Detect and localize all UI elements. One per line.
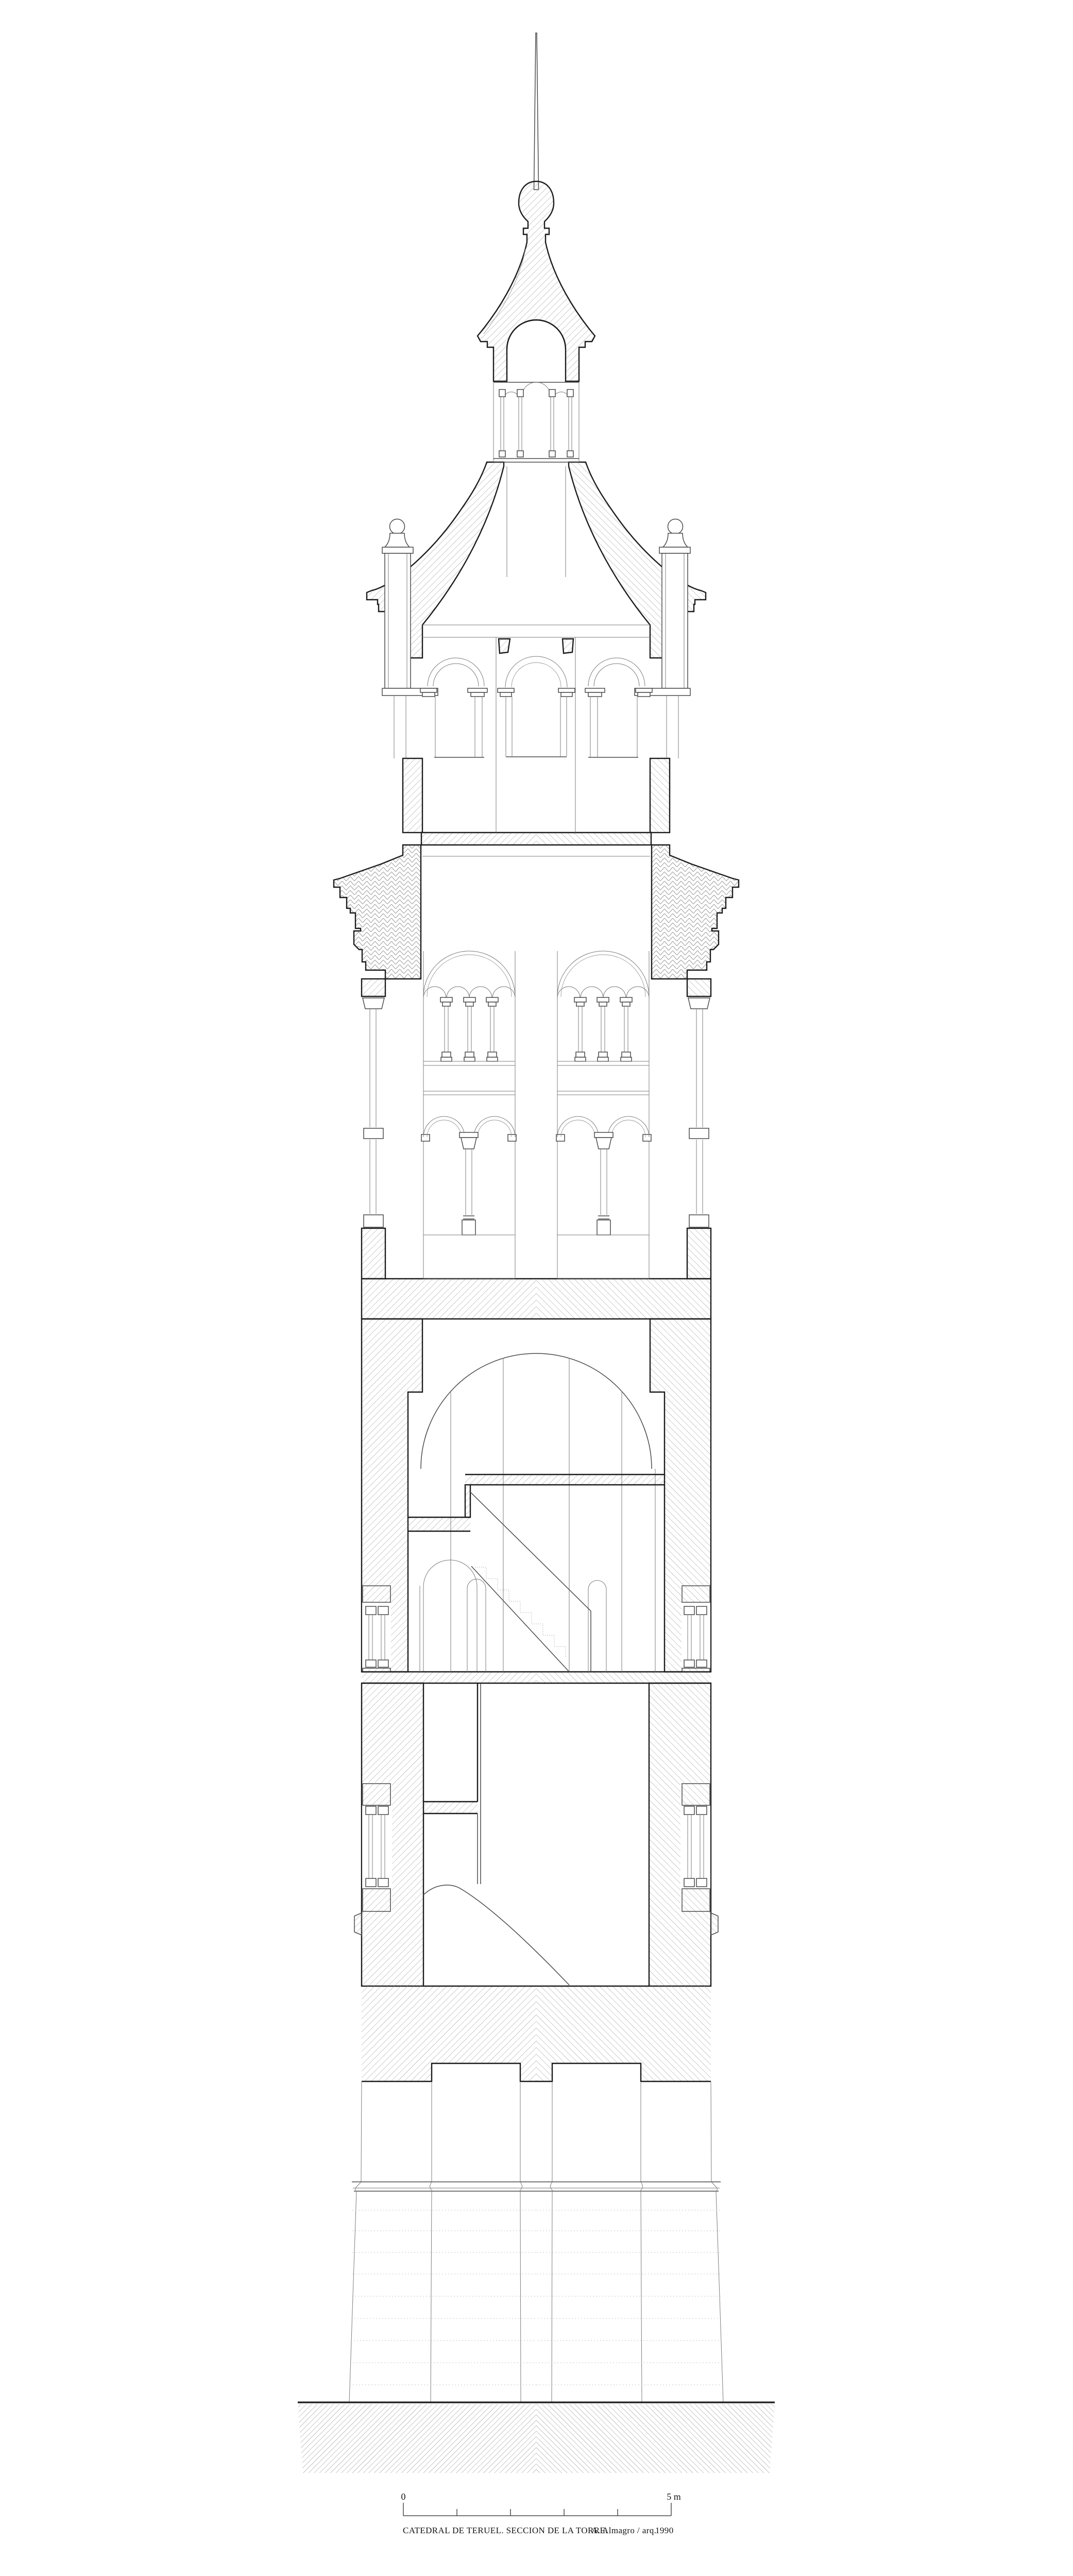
stage3-interior bbox=[408, 1353, 665, 1672]
lower-vault-curve bbox=[423, 1885, 569, 1985]
stage4-interior bbox=[423, 1683, 649, 1986]
spire bbox=[478, 33, 595, 381]
lantern-colonnettes bbox=[499, 389, 573, 457]
belfry-window-center bbox=[498, 656, 575, 757]
belfry-window-left bbox=[420, 658, 487, 757]
stair-steps-dashed bbox=[475, 1567, 566, 1658]
spire-needle bbox=[534, 33, 539, 190]
stair-flight bbox=[470, 1492, 591, 1672]
belfry-window-right bbox=[585, 658, 652, 757]
lantern-arcade bbox=[493, 382, 579, 462]
caption: CATEDRAL DE TERUEL. SECCION DE LA TORRE.… bbox=[403, 2526, 674, 2535]
drawing-sheet: 0 5 m CATEDRAL DE TERUEL. SECCION DE LA … bbox=[0, 0, 1073, 2576]
spire-finial-roof bbox=[478, 181, 595, 381]
caption-year: 1990 bbox=[655, 2526, 674, 2535]
caption-title: CATEDRAL DE TERUEL. SECCION DE LA TORRE. bbox=[403, 2526, 608, 2535]
lower-landing-slab bbox=[408, 1517, 470, 1531]
upper-landing-slab bbox=[465, 1475, 665, 1517]
twin-arch-bay-right bbox=[556, 1116, 651, 1279]
window-stage-upper bbox=[423, 951, 649, 1279]
cut-beam bbox=[499, 639, 510, 653]
left-wall-structure bbox=[298, 462, 536, 2473]
shaft-landing-slab bbox=[424, 1802, 478, 1814]
window-stage-lower bbox=[421, 1116, 651, 1279]
main-vault bbox=[421, 1353, 652, 1469]
scale-end-label: 5 m bbox=[667, 2492, 681, 2502]
belfry bbox=[420, 625, 652, 833]
twin-arch-bay-left bbox=[421, 1116, 516, 1279]
scale-start-label: 0 bbox=[401, 2492, 406, 2502]
cut-beam bbox=[563, 639, 573, 653]
slot-window bbox=[467, 1579, 486, 1672]
right-wall-structure bbox=[536, 462, 775, 2473]
scale-bar: 0 5 m bbox=[401, 2492, 681, 2516]
tower-section-drawing: 0 5 m CATEDRAL DE TERUEL. SECCION DE LA … bbox=[0, 0, 1073, 2576]
caption-credit: A. Almagro / arq. bbox=[591, 2526, 656, 2535]
